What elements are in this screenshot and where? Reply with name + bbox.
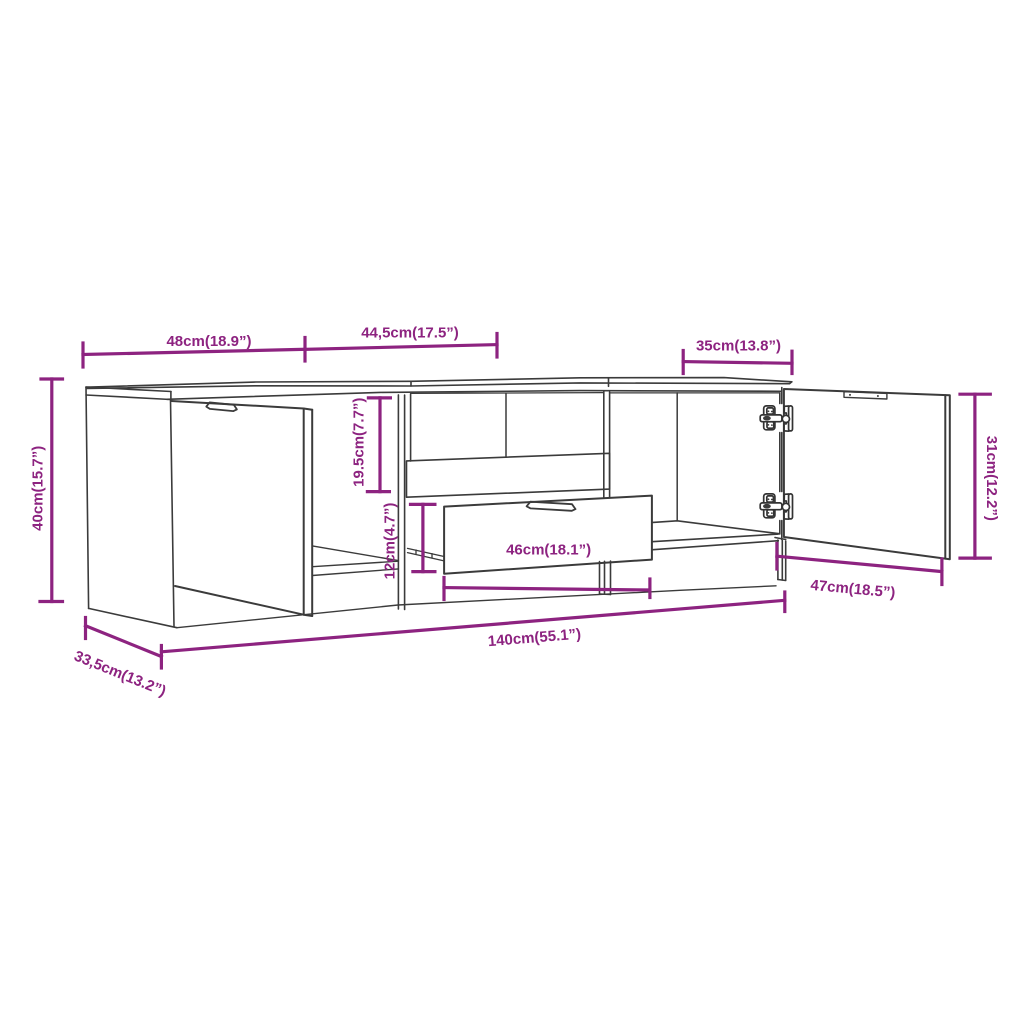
- svg-text:48cm(18.9”): 48cm(18.9”): [166, 333, 251, 350]
- svg-text:44,5cm(17.5”): 44,5cm(17.5”): [361, 325, 459, 342]
- svg-text:12cm(4.7”): 12cm(4.7”): [381, 503, 398, 580]
- svg-text:31cm(12.2”): 31cm(12.2”): [983, 436, 1000, 521]
- svg-text:46cm(18.1”): 46cm(18.1”): [506, 541, 591, 558]
- svg-text:35cm(13.8”): 35cm(13.8”): [696, 338, 781, 355]
- svg-text:40cm(15.7”): 40cm(15.7”): [30, 446, 47, 531]
- svg-text:19.5cm(7.7”): 19.5cm(7.7”): [350, 398, 367, 487]
